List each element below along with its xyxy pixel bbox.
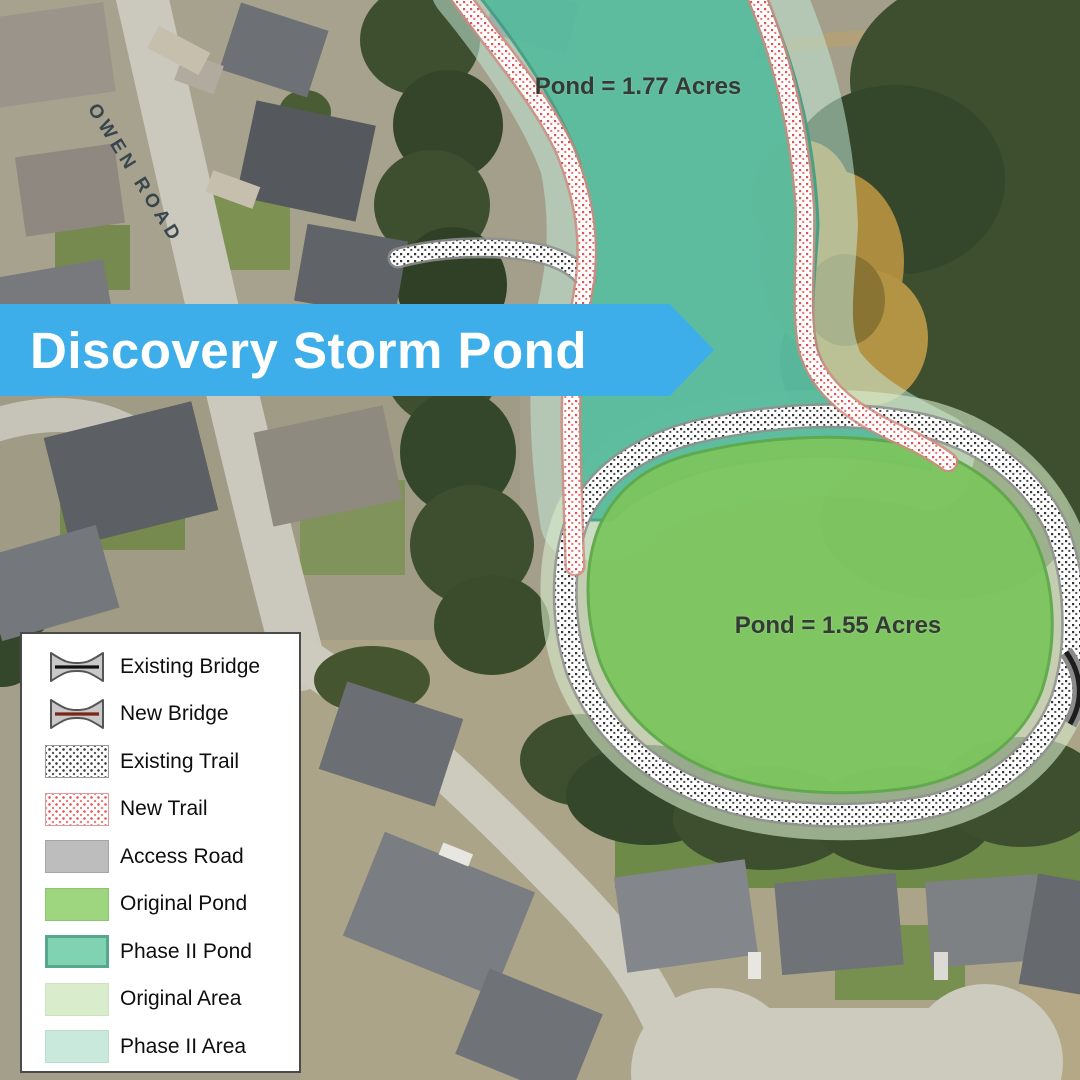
existing-bridge-icon (34, 649, 120, 685)
phase2-area-swatch (45, 1030, 109, 1063)
original-pond-acreage-label: Pond = 1.55 Acres (716, 612, 960, 640)
legend-row-access-road: Access Road (34, 833, 299, 881)
title-banner: Discovery Storm Pond (0, 304, 714, 396)
legend-row-original-area: Original Area (34, 976, 299, 1024)
legend-label: Access Road (120, 845, 244, 869)
legend-label: Phase II Area (120, 1035, 246, 1059)
legend-row-existing-bridge: Existing Bridge (34, 643, 299, 691)
legend-row-new-bridge: New Bridge (34, 691, 299, 739)
legend: Existing Bridge New Bridge Existing Trai… (20, 632, 301, 1073)
new-bridge-icon (34, 696, 120, 732)
map-screenshot: Pond = 1.77 Acres Pond = 1.55 Acres OWEN… (0, 0, 1080, 1080)
legend-row-existing-trail: Existing Trail (34, 738, 299, 786)
legend-row-phase2-pond: Phase II Pond (34, 928, 299, 976)
original-area-swatch (45, 983, 109, 1016)
legend-label: Existing Bridge (120, 655, 260, 679)
legend-label: Phase II Pond (120, 940, 252, 964)
legend-label: Original Area (120, 987, 241, 1011)
legend-row-phase2-area: Phase II Area (34, 1023, 299, 1071)
legend-label: New Trail (120, 797, 208, 821)
page-title: Discovery Storm Pond (0, 321, 587, 380)
legend-row-new-trail: New Trail (34, 786, 299, 834)
legend-label: New Bridge (120, 702, 229, 726)
legend-label: Existing Trail (120, 750, 239, 774)
legend-row-original-pond: Original Pond (34, 881, 299, 929)
phase2-pond-acreage-label: Pond = 1.77 Acres (516, 73, 760, 101)
existing-trail-swatch (45, 745, 109, 778)
phase2-pond-swatch (45, 935, 109, 968)
access-road-swatch (45, 840, 109, 873)
original-pond-swatch (45, 888, 109, 921)
new-trail-swatch (45, 793, 109, 826)
legend-label: Original Pond (120, 892, 247, 916)
